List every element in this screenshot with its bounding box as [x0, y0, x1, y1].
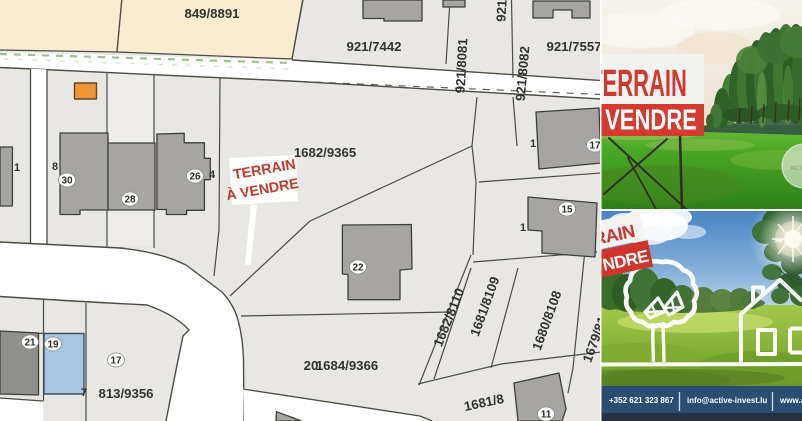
svg-text:921: 921 — [493, 0, 509, 22]
svg-text:1684/9366: 1684/9366 — [316, 358, 378, 373]
svg-text:11: 11 — [541, 410, 552, 421]
svg-text:813/9356: 813/9356 — [98, 386, 153, 401]
svg-text:ACTI: ACTI — [790, 166, 802, 172]
svg-text:+352 621 323 867: +352 621 323 867 — [609, 396, 674, 405]
svg-text:921/7442: 921/7442 — [346, 39, 401, 54]
svg-text:17: 17 — [110, 356, 122, 367]
svg-text:4: 4 — [209, 169, 216, 181]
svg-text:19: 19 — [47, 340, 59, 351]
svg-text:7: 7 — [81, 387, 87, 399]
svg-text:info@active-invest.lu: info@active-invest.lu — [687, 396, 767, 405]
svg-text:921/8081: 921/8081 — [453, 38, 471, 94]
svg-text:15: 15 — [561, 205, 573, 216]
svg-text:8: 8 — [52, 161, 58, 173]
svg-text:921/7557: 921/7557 — [546, 39, 601, 54]
svg-text:30: 30 — [61, 176, 73, 187]
svg-text:849/8891: 849/8891 — [184, 6, 239, 21]
svg-text:22: 22 — [352, 263, 364, 274]
svg-text:1: 1 — [530, 138, 536, 150]
svg-text:26: 26 — [189, 172, 201, 183]
svg-text:1682/9365: 1682/9365 — [294, 145, 356, 160]
svg-text:1: 1 — [520, 222, 526, 234]
svg-text:28: 28 — [124, 195, 136, 206]
svg-text:21: 21 — [24, 338, 36, 349]
svg-text:TERRAIN: TERRAIN — [589, 62, 687, 105]
svg-text:www.activ: www.activ — [779, 396, 802, 405]
svg-text:1: 1 — [14, 162, 20, 174]
svg-text:17: 17 — [589, 141, 601, 152]
